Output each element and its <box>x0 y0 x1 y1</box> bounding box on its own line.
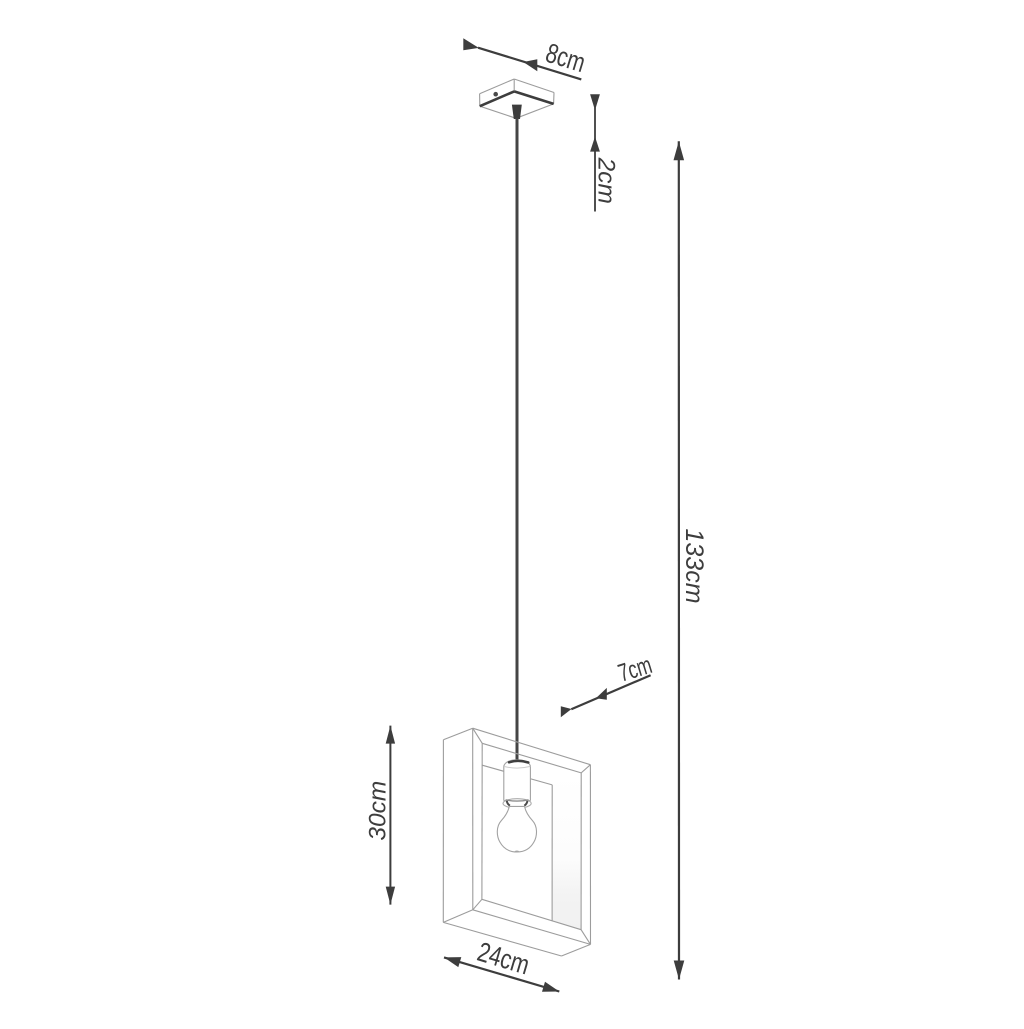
svg-text:30cm: 30cm <box>365 781 392 841</box>
svg-text:133cm: 133cm <box>680 528 708 603</box>
svg-text:2cm: 2cm <box>593 157 620 204</box>
